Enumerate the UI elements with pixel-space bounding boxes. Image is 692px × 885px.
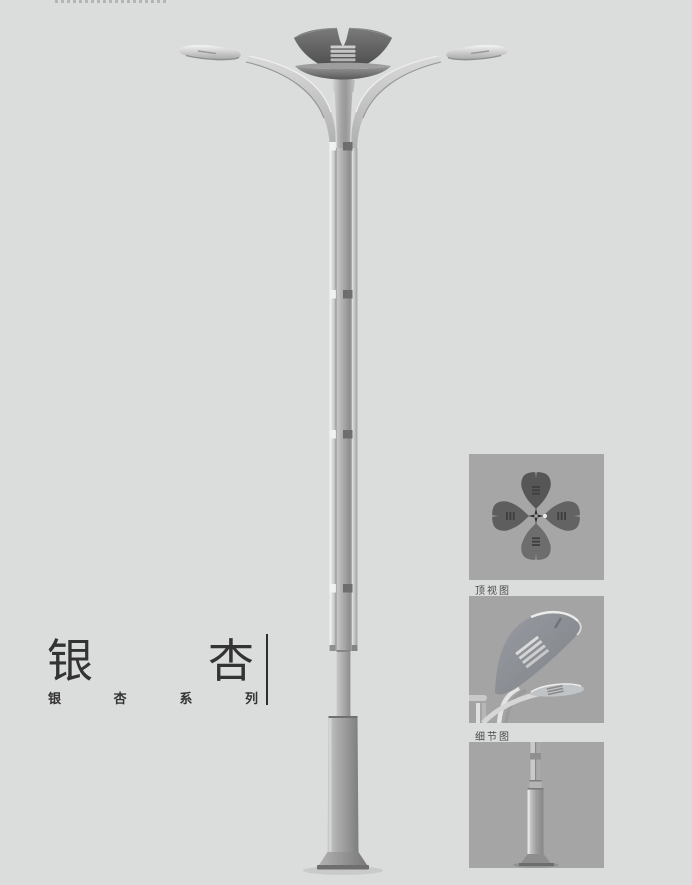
catalog-page: 银 杏 银 杏 系 列: [0, 0, 692, 885]
top-view-render: [469, 454, 604, 580]
caption-top-view: 顶视图: [475, 582, 511, 597]
title-char-2: 杏: [208, 636, 254, 687]
caption-detail-view: 细节图: [475, 728, 511, 743]
product-title: 银 杏: [47, 636, 254, 687]
lamp-base: [303, 716, 383, 875]
series-subtitle: 银 杏 系 列: [48, 688, 258, 707]
base-view-render: [469, 742, 604, 868]
thumbnail-top-view: [469, 454, 604, 580]
lamp-arm-left: [179, 45, 337, 152]
title-divider-rule: [266, 634, 268, 705]
detail-view-render: [469, 596, 604, 723]
lamp-arm-right: [350, 45, 508, 152]
thumbnail-detail-view: [469, 596, 604, 723]
lamp-pole: [329, 142, 357, 716]
lamp-collar: [295, 63, 391, 80]
title-char-1: 银: [47, 636, 93, 687]
thumbnail-base-view: [469, 742, 604, 868]
